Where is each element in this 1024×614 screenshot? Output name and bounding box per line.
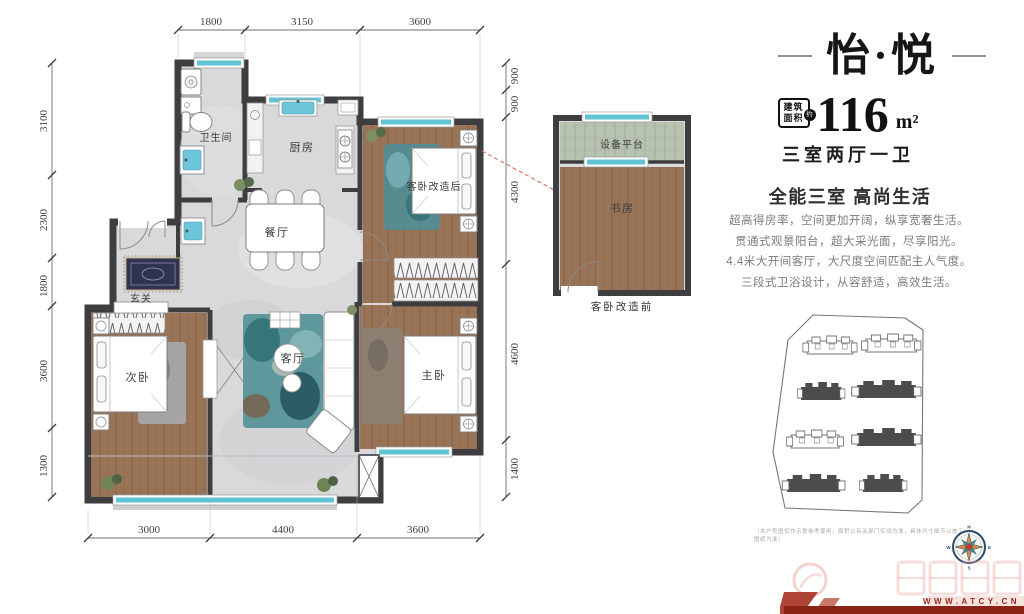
dim-right-5: 1400	[509, 458, 521, 481]
floorplan-brochure: 卫生间 厨房 餐厅 客卧改造后 玄关 次卧 客厅 主卧 1800 3150	[0, 0, 1024, 614]
room-label-master-bedroom: 主卧	[422, 369, 447, 382]
dim-right-1: 900	[509, 67, 521, 84]
dim-left-3: 1800	[38, 275, 50, 298]
area-badge-line1: 建筑	[784, 102, 804, 113]
selling-line: 三段式卫浴设计，从容舒适，高效生活。	[720, 273, 978, 294]
dim-bottom-2: 4400	[272, 524, 295, 536]
dim-left-4: 3600	[38, 360, 50, 383]
inset-caption: 客卧改造前	[591, 300, 654, 313]
floorplan-drawing: 卫生间 厨房 餐厅 客卧改造后 玄关 次卧 客厅 主卧 1800 3150	[0, 0, 740, 614]
watermark-url: WWW.ATCY.CN	[923, 597, 1020, 606]
duct-shaft	[359, 455, 379, 498]
room-label-second-bedroom: 次卧	[126, 370, 151, 384]
dim-left-2: 2300	[38, 209, 50, 232]
area-row: 建筑 面积 约 116 m²	[742, 94, 954, 135]
selling-line: 超高得房率，空间更加开阔，纵享宽奢生活。	[720, 211, 978, 232]
page-title: 怡·悦	[826, 34, 938, 78]
selling-headline: 全能三室 高尚生活	[728, 183, 972, 209]
dim-right-2: 900	[509, 95, 521, 112]
watermark: WWW.ATCY.CN	[780, 550, 1024, 614]
room-label-living: 客厅	[281, 351, 306, 365]
dim-right-3: 4300	[509, 181, 521, 204]
title-row: 怡·悦	[740, 34, 1024, 78]
inset-before-renovation: 设备平台 书房	[556, 112, 688, 298]
dim-bottom-3: 3600	[407, 524, 430, 536]
selling-line: 贯通式观景阳台，超大采光面，尽享阳光。	[720, 232, 978, 253]
room-label-guest: 客卧改造后	[407, 180, 462, 193]
disclaimer-text: （本户型图仅作示意参考使用，面积以有关部门实测为准，具体尺寸细节以施工图纸为准）	[754, 527, 964, 543]
room-label-bathroom: 卫生间	[200, 131, 233, 144]
dim-left-5: 1300	[38, 455, 50, 478]
area-approx-dot: 约	[804, 109, 816, 121]
inset-label-study: 书房	[610, 202, 635, 215]
site-plan	[765, 302, 935, 524]
title-dash-left	[778, 55, 812, 57]
dim-left-1: 3100	[38, 110, 50, 133]
area-unit: m²	[896, 112, 919, 132]
dim-right-4: 4600	[509, 343, 521, 366]
dim-bottom-1: 3000	[138, 524, 161, 536]
room-label-dining: 餐厅	[265, 225, 290, 239]
area-badge-line2: 面积	[784, 113, 804, 124]
area-value: 116	[817, 94, 889, 135]
title-dash-right	[952, 55, 986, 57]
hall-basin	[181, 218, 205, 244]
compass-n: N	[967, 525, 970, 530]
room-label-entry: 玄关	[130, 292, 152, 305]
dim-top-1: 1800	[200, 16, 223, 28]
inset-label-platform: 设备平台	[600, 138, 644, 151]
dim-top-3: 3600	[409, 16, 432, 28]
layout-spec: 三室两厅一卫	[742, 141, 954, 167]
room-label-kitchen: 厨房	[290, 141, 315, 154]
selling-line: 4.4米大开间客厅，大尺度空间匹配主人气度。	[720, 252, 978, 273]
selling-description: 超高得房率，空间更加开阔，纵享宽奢生活。 贯通式观景阳台，超大采光面，尽享阳光。…	[720, 211, 978, 293]
area-badge: 建筑 面积 约	[778, 98, 810, 129]
dim-top-2: 3150	[291, 16, 314, 28]
watermark-glyphs	[898, 562, 1020, 594]
